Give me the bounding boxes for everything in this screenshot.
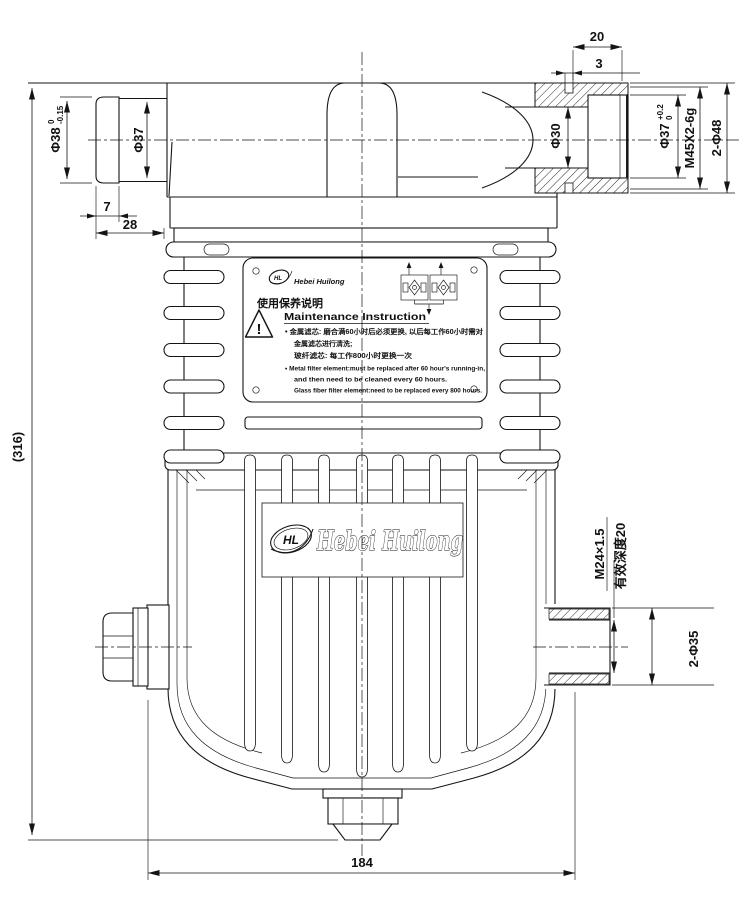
dim-2-phi48: 2-Φ48 [709, 120, 724, 157]
dim-spigot-body-od: Φ37 [131, 102, 147, 178]
cooling-fins-left [164, 271, 224, 430]
nameplate-title-zh: 使用保养说明 [256, 296, 323, 310]
dim-3: 3 [595, 56, 602, 71]
nameplate: HL Hebei Huilong 使用保养说明 ! Maintenance In… [243, 258, 487, 402]
nameplate-zh-line1: • 金属滤芯: 磨合满60小时后必须更换, 以后每工作60小时需对 [285, 327, 483, 336]
svg-text:0: 0 [665, 115, 674, 120]
outlet-port-section [505, 83, 628, 193]
body-brand-text: Hebei Huilong [316, 526, 463, 557]
dim-spigot-length: 28 [96, 217, 164, 239]
cover-flange [170, 197, 557, 242]
outlet-boss-right [544, 604, 612, 689]
port-bore-lines [505, 107, 588, 168]
dim-phi37-left: Φ37 [131, 127, 146, 152]
nameplate-title-en: Maintenance Instruction [284, 311, 426, 323]
logo-monogram: HL [283, 533, 299, 547]
svg-text:0: 0 [47, 119, 56, 124]
thread-relief-groove-bottom [565, 183, 573, 193]
dim-m45x2: M45X2-6g [682, 108, 697, 169]
logo-monogram: HL [274, 276, 282, 282]
svg-text:-0.15: -0.15 [56, 105, 65, 124]
dim-phi37-right: Φ37 [657, 123, 672, 148]
nameplate-en-line2: and then need to be cleaned every 60 hou… [294, 377, 447, 384]
nameplate-zh-line3: 玻纤滤芯: 每工作800小时更换一次 [294, 351, 412, 360]
dim-phi30: Φ30 [548, 123, 563, 148]
svg-text:+0.2: +0.2 [656, 104, 665, 120]
dim-depth-20: 有效深度20 [613, 523, 628, 589]
dim-spigot-od: Φ38 0 -0.15 [47, 97, 92, 183]
engineering-drawing-page: HL Hebei Huilong [0, 0, 749, 918]
dim-port-bore: Φ30 [548, 107, 568, 168]
nameplate-en-line1: • Metal filter element:must be replaced … [285, 366, 485, 373]
dim-28: 28 [123, 217, 137, 232]
cooling-fins-right [500, 271, 560, 430]
dim-316: (316) [10, 432, 25, 462]
dim-2-phi35: 2-Φ35 [686, 631, 701, 668]
dim-outlet-ports: 2-Φ35 [612, 608, 714, 685]
dim-184: 184 [351, 855, 373, 870]
svg-text:!: ! [257, 321, 262, 338]
nameplate-zh-line2: 金属滤芯进行清洗; [293, 339, 352, 348]
dim-phi38: Φ38 [48, 127, 63, 152]
drain-hex [328, 798, 398, 824]
nameplate-en-line3: Glass fiber filter element:need to be re… [294, 388, 482, 395]
dim-thread-bore: Φ37 +0.2 0 [630, 95, 686, 178]
dim-7: 7 [103, 199, 110, 214]
dim-20: 20 [590, 29, 604, 44]
filter-assembly-drawing: HL Hebei Huilong [0, 0, 749, 918]
thread-relief-groove-top [565, 83, 573, 93]
drain-plug [323, 789, 402, 840]
dim-m24: M24×1.5 [592, 529, 607, 580]
port-thread-bore [588, 95, 628, 178]
adapter-plate [174, 228, 548, 242]
nameplate-brand: Hebei Huilong [294, 277, 345, 286]
dim-groove: 3 [551, 56, 640, 83]
brand-band: HL Hebei Huilong [262, 503, 463, 577]
lower-bar [245, 417, 482, 429]
